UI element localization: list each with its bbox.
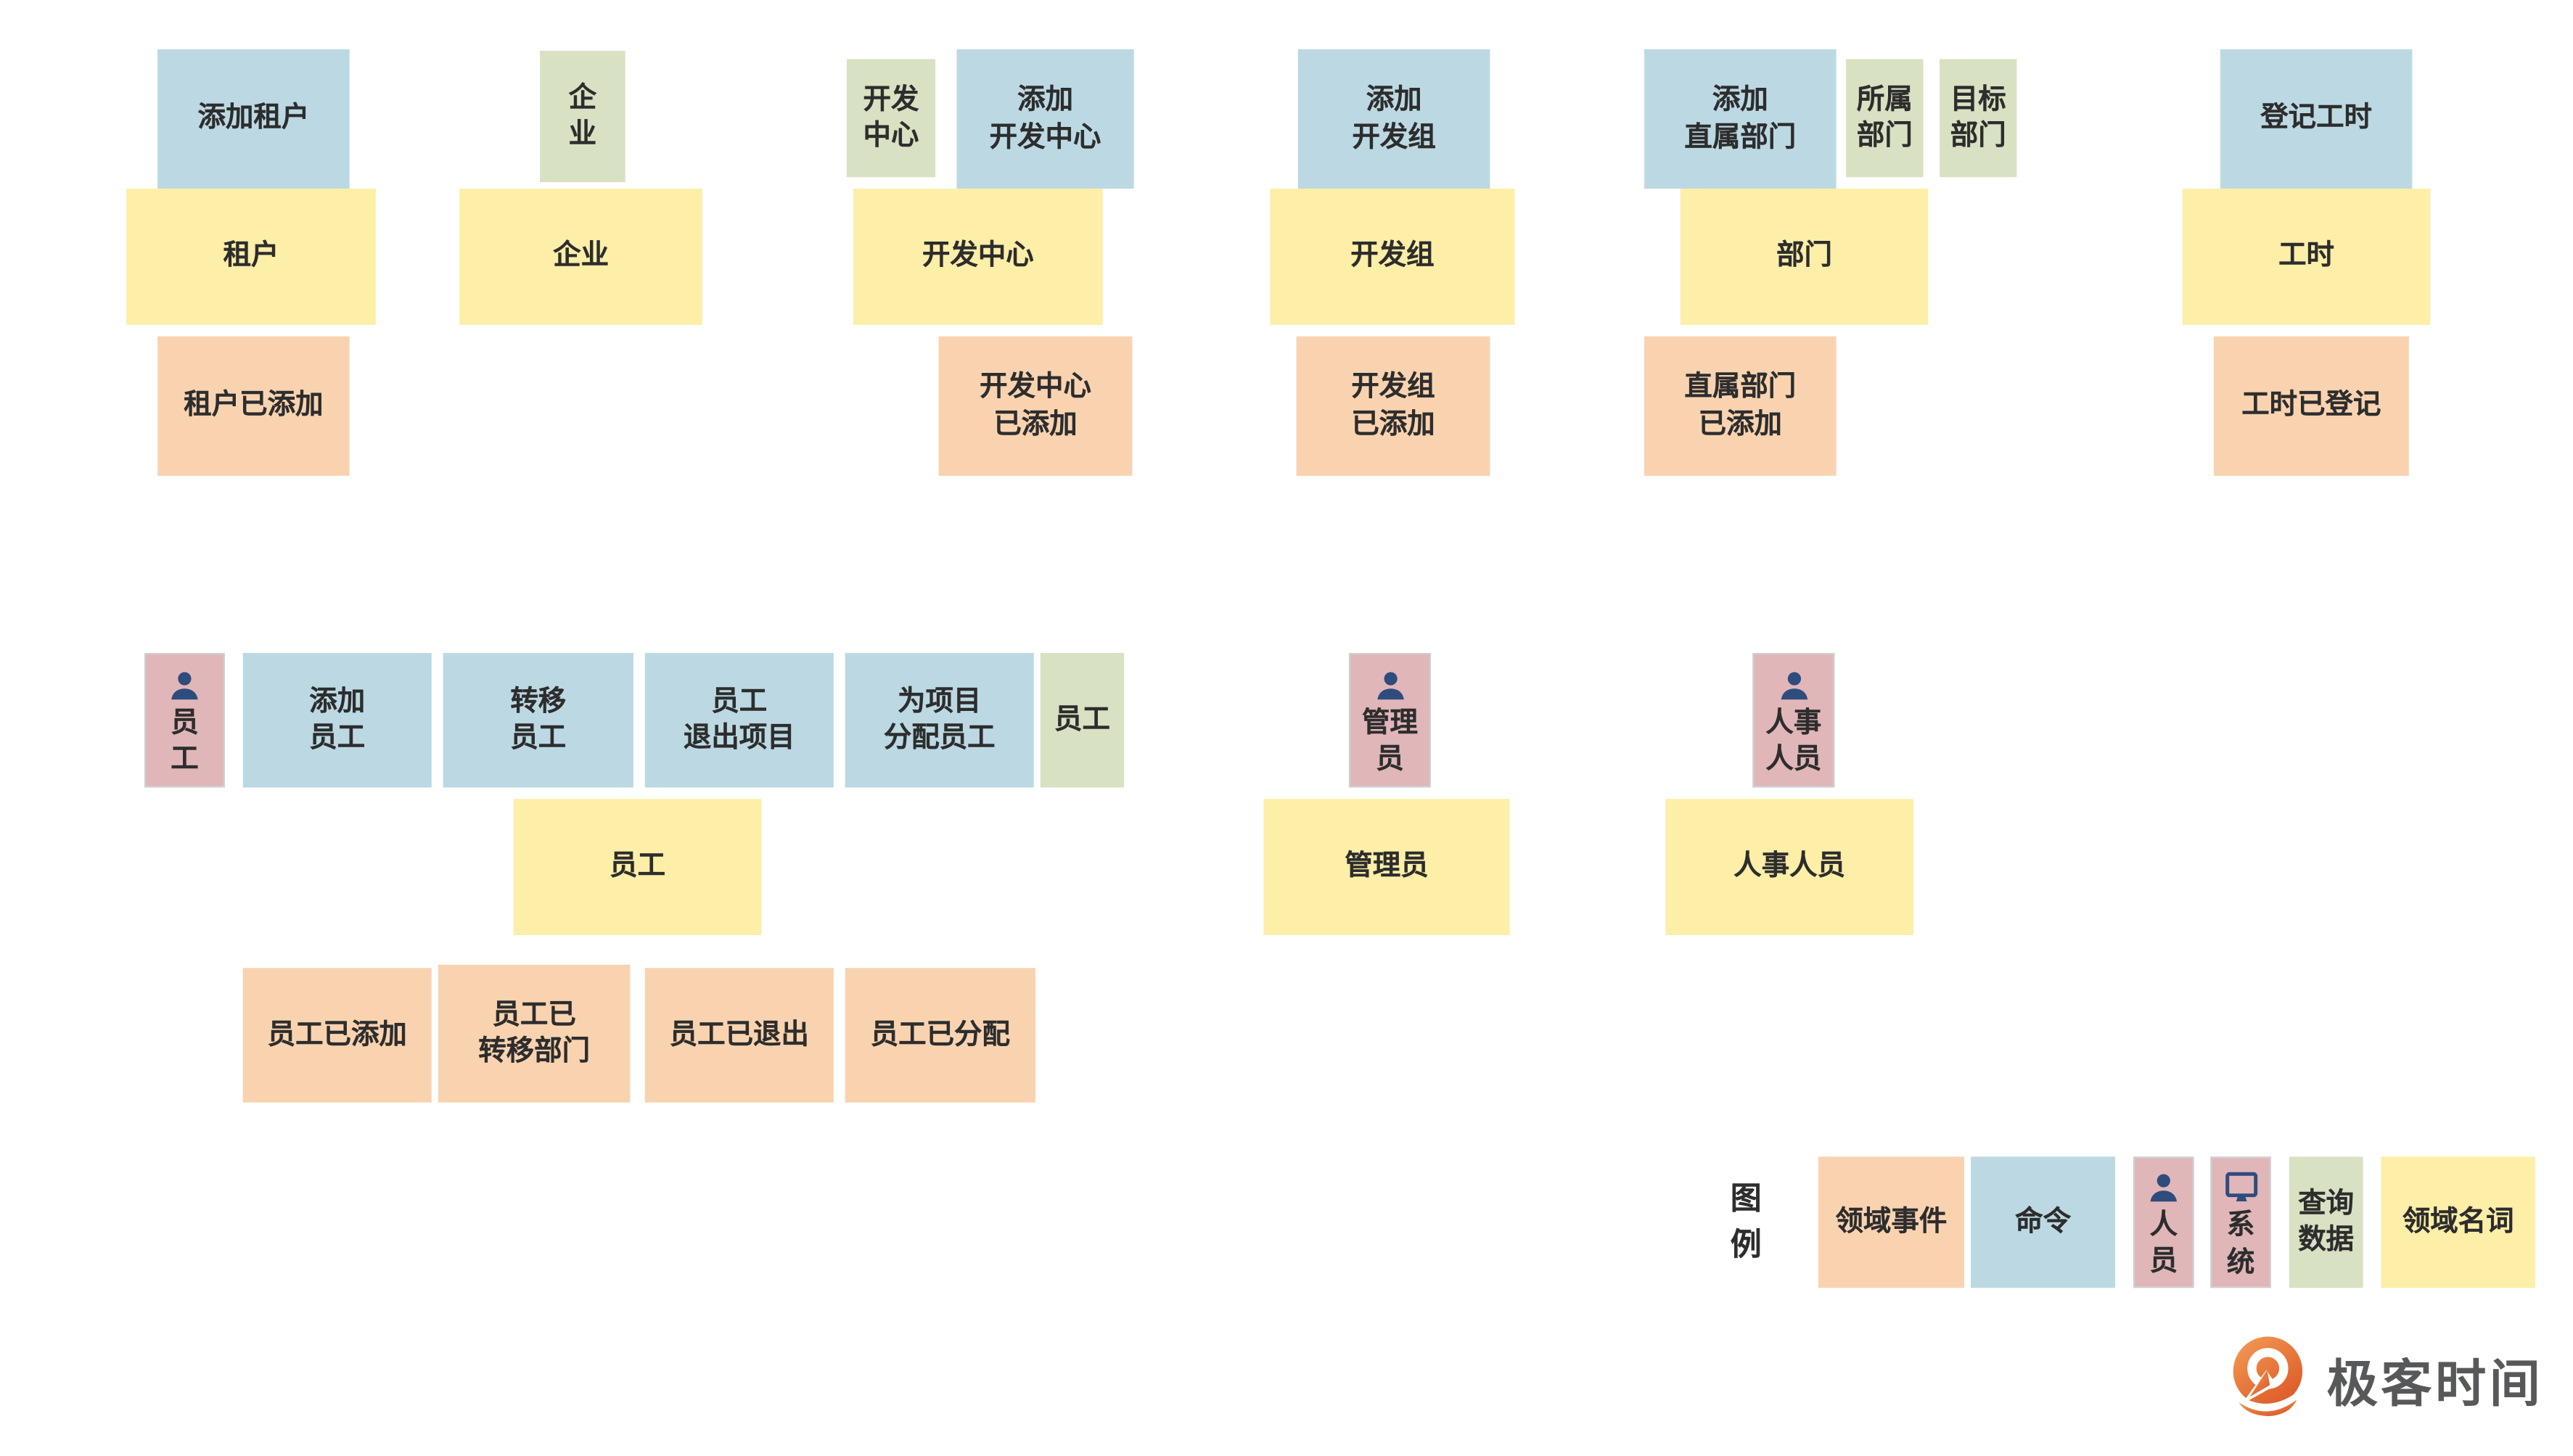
person-icon: [1776, 669, 1810, 703]
sticky-noun-hr-staff: 人事人员: [1665, 799, 1913, 935]
sticky-command-add-dev-center: 添加 开发中心: [956, 49, 1133, 189]
sticky-event-employee-quit: 员工已退出: [645, 968, 834, 1102]
sticky-command-employee-quit-project: 员工 退出项目: [645, 653, 834, 787]
actor-hr-staff: 人事 人员: [1752, 653, 1834, 787]
geektime-logo-text: 极客时间: [2327, 1341, 2544, 1415]
sticky-command-log-work-hours: 登记工时: [2220, 49, 2413, 189]
monitor-icon: [2223, 1170, 2259, 1206]
sticky-query-dev-center: 开发 中心: [847, 59, 935, 177]
sticky-event-tenant-added: 租户已添加: [157, 337, 350, 476]
sticky-event-dev-center-added: 开发中心 已添加: [939, 337, 1133, 476]
sticky-event-employee-transferred: 员工已 转移部门: [438, 965, 631, 1103]
sticky-command-assign-employee-to-project: 为项目 分配员工: [845, 653, 1034, 787]
sticky-noun-enterprise: 企业: [459, 189, 702, 325]
sticky-command-add-dev-team: 添加 开发组: [1298, 49, 1490, 189]
event-storming-diagram: 添加租户 租户 租户已添加 企 业 企业 开发 中心 添加 开发中心 开发中心 …: [0, 0, 2573, 1455]
legend-item-system-label: 系 统: [2227, 1208, 2254, 1281]
legend-item-person-label: 人 员: [2150, 1206, 2178, 1280]
legend-item-person: 人 员: [2133, 1156, 2194, 1288]
actor-admin-label: 管理 员: [1362, 704, 1418, 778]
geektime-logo-icon: [2223, 1332, 2312, 1424]
sticky-noun-department: 部门: [1681, 189, 1928, 325]
sticky-event-work-hours-logged: 工时已登记: [2214, 337, 2409, 476]
actor-employee-label: 员 工: [171, 704, 198, 778]
actor-admin: 管理 员: [1349, 653, 1431, 787]
sticky-command-transfer-employee: 转移 员工: [443, 653, 633, 787]
actor-employee: 员 工: [144, 653, 225, 787]
sticky-noun-tenant: 租户: [126, 189, 376, 325]
sticky-noun-work-hours: 工时: [2183, 189, 2430, 325]
sticky-noun-dev-team: 开发组: [1270, 189, 1514, 325]
sticky-noun-admin: 管理员: [1263, 799, 1509, 935]
actor-hr-staff-label: 人事 人员: [1765, 704, 1821, 778]
legend-title: 图 例: [1713, 1165, 1778, 1283]
legend-item-command: 命令: [1971, 1156, 2115, 1288]
sticky-event-employee-added: 员工已添加: [243, 968, 432, 1102]
sticky-event-employee-assigned: 员工已分配: [845, 968, 1035, 1102]
legend-item-domain-noun: 领域名词: [2381, 1156, 2535, 1288]
sticky-command-add-direct-department: 添加 直属部门: [1644, 49, 1837, 189]
sticky-command-add-employee: 添加 员工: [243, 653, 432, 787]
legend-item-domain-event: 领域事件: [1818, 1156, 1964, 1288]
geektime-logo: 极客时间: [2223, 1332, 2543, 1424]
sticky-query-owner-department: 所属 部门: [1846, 59, 1923, 177]
sticky-event-dev-team-added: 开发组 已添加: [1297, 337, 1490, 476]
legend-item-system: 系 统: [2210, 1156, 2271, 1288]
person-icon: [1373, 669, 1407, 703]
sticky-query-enterprise: 企 业: [540, 51, 625, 182]
sticky-command-add-tenant: 添加租户: [157, 49, 350, 189]
legend-item-query-data: 查询 数据: [2289, 1156, 2363, 1288]
sticky-query-employee: 员工: [1041, 653, 1124, 787]
person-icon: [2146, 1171, 2180, 1205]
sticky-query-target-department: 目标 部门: [1940, 59, 2016, 177]
sticky-noun-employee: 员工: [514, 799, 761, 935]
sticky-event-direct-department-added: 直属部门 已添加: [1644, 337, 1837, 476]
sticky-noun-dev-center: 开发中心: [853, 189, 1103, 325]
person-icon: [168, 669, 202, 703]
